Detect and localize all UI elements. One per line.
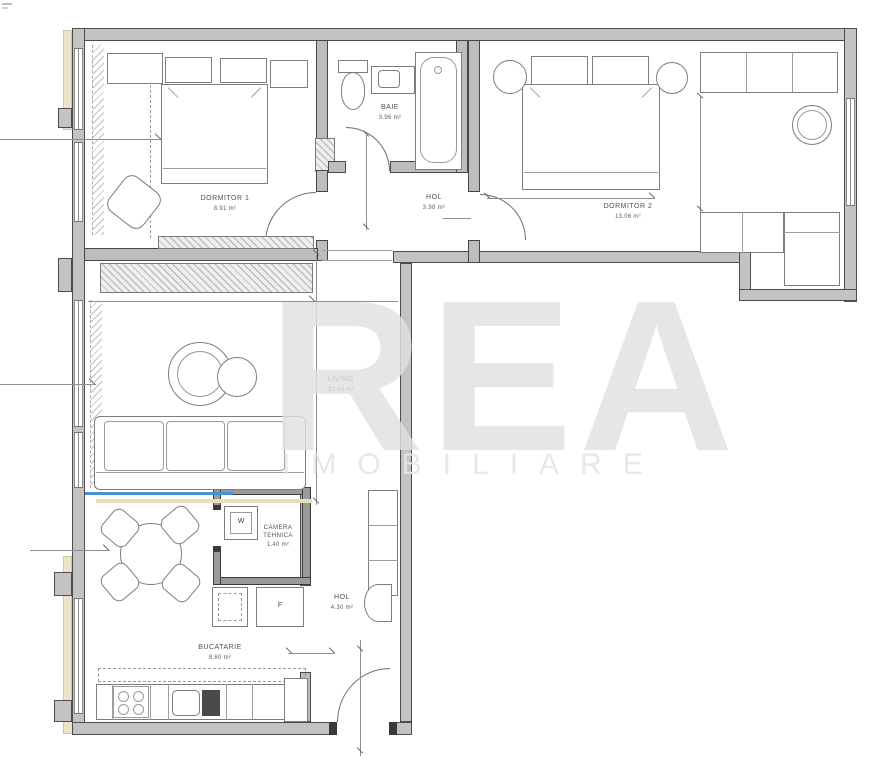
room-label-baie: BAIE 3.96 m² xyxy=(368,103,412,123)
room-name: DORMITOR 2 xyxy=(580,202,676,213)
dimension-line xyxy=(288,653,334,654)
stove-burner xyxy=(133,691,144,702)
room-label-hol2: HOL 4.30 m² xyxy=(320,593,364,613)
counter-divider xyxy=(150,684,151,720)
dimension-line xyxy=(700,97,701,212)
round-stool xyxy=(656,62,688,94)
sofa-seat xyxy=(104,421,164,471)
wardrobe-divider xyxy=(792,52,793,93)
corner-cabinet xyxy=(784,212,840,286)
room-area: 8.60 m² xyxy=(185,654,255,663)
wall-hall-bedroom2 xyxy=(468,40,480,192)
floor-plan: DORMITOR 1 8.91 m² BAIE 3.96 m² HOL 3.98… xyxy=(0,0,880,768)
room-area: 4.30 m² xyxy=(320,604,364,613)
window xyxy=(74,142,83,222)
room-label-camera-tehnica: CAMERA TEHNICA 1.40 m² xyxy=(255,524,301,549)
window xyxy=(74,598,83,714)
cabinet-divider xyxy=(784,232,840,233)
low-cabinet xyxy=(158,236,314,249)
dimension-line xyxy=(88,301,398,302)
bed-double xyxy=(522,84,660,190)
counter-divider xyxy=(168,684,169,720)
wall-wing-right xyxy=(400,263,412,722)
door-jamb xyxy=(329,722,337,735)
room-label-bucatarie: BUCATARIE 8.60 m² xyxy=(185,643,255,663)
floor-transition-line xyxy=(322,250,392,251)
room-name: DORMITOR 1 xyxy=(180,194,270,205)
wall-wing-bottom xyxy=(393,251,750,263)
round-stool xyxy=(493,60,527,94)
door-arc-entrance xyxy=(337,668,390,722)
dimension-line xyxy=(366,135,367,230)
window xyxy=(74,300,83,427)
sink-basin xyxy=(378,70,400,88)
console-半round-table xyxy=(364,584,392,622)
dimension-line xyxy=(487,198,655,199)
nightstand xyxy=(270,60,308,88)
facade-pier xyxy=(54,572,72,596)
wardrobe-divider xyxy=(746,52,747,93)
fridge-letter: F xyxy=(275,602,285,609)
toilet-bowl xyxy=(341,72,365,110)
room-area: 1.40 m² xyxy=(255,541,301,549)
watermark-subtitle-text: IMOBILIARE xyxy=(282,450,664,480)
corner-artifact xyxy=(2,3,12,5)
dimension-line xyxy=(360,640,361,756)
room-name: BUCATARIE xyxy=(185,643,255,654)
room-area: 31.60 m² xyxy=(310,386,372,395)
armchair xyxy=(103,171,165,233)
window xyxy=(74,432,83,488)
door-jamb xyxy=(213,546,221,551)
room-label-dormitor1: DORMITOR 1 8.91 m² xyxy=(180,194,270,214)
counter-divider xyxy=(252,684,253,720)
corner-artifact xyxy=(2,7,8,9)
wardrobe xyxy=(700,52,838,93)
nightstand xyxy=(165,57,212,83)
door-jamb xyxy=(213,505,221,510)
room-label-dormitor2: DORMITOR 2 13.06 m² xyxy=(580,202,676,222)
tv-cabinet xyxy=(100,263,313,293)
window xyxy=(846,98,855,206)
coffee-table-small xyxy=(217,357,257,397)
curtain-symbol xyxy=(92,45,104,235)
wall-bath-bottom xyxy=(328,161,346,173)
kitchen-sink xyxy=(172,690,200,716)
stove-burner xyxy=(118,704,129,715)
accent-blue-line xyxy=(85,492,233,495)
round-chair-inner xyxy=(797,110,827,140)
wall-bottom-right xyxy=(395,722,412,735)
counter-divider xyxy=(226,684,227,720)
room-name: CAMERA TEHNICA xyxy=(255,524,301,541)
wall-step-bottom xyxy=(739,289,857,301)
bed-blanket-line xyxy=(163,168,266,169)
room-area: 13.06 m² xyxy=(580,213,676,222)
sofa-seat xyxy=(166,421,225,471)
door-arc-bedroom2 xyxy=(480,194,526,240)
wall-bottom-left xyxy=(72,722,335,735)
wardrobe-divider xyxy=(368,525,398,526)
bed-double xyxy=(161,84,268,184)
floor-transition-line xyxy=(322,260,392,261)
sofa-seat xyxy=(227,421,285,471)
accent-tan-line xyxy=(96,499,312,503)
counter-return xyxy=(284,678,308,722)
room-name: BAIE xyxy=(368,103,412,114)
dimension-line xyxy=(0,139,162,140)
tall-unit-dashed xyxy=(218,593,242,621)
room-name: HOL xyxy=(412,193,456,204)
wall-technical-room xyxy=(213,577,311,585)
dimension-line xyxy=(30,550,110,551)
bathtub-drain xyxy=(434,66,442,74)
wardrobe-divider xyxy=(368,560,398,561)
facade-pier xyxy=(54,700,72,722)
stove-burner xyxy=(118,691,129,702)
wardrobe xyxy=(107,53,163,84)
room-area: 3.96 m² xyxy=(368,114,412,123)
sofa-back-line xyxy=(96,472,304,473)
room-name: LIVING xyxy=(310,375,372,386)
wall-bedroom1-hall xyxy=(316,170,328,192)
coffee-table-large-inner xyxy=(177,351,223,397)
room-area: 8.91 m² xyxy=(180,205,270,214)
washing-machine-letter: W xyxy=(236,518,246,525)
facade-pier xyxy=(58,258,72,292)
wall-bedroom1-living xyxy=(84,248,318,261)
door-jamb xyxy=(389,722,397,735)
wall-bedroom1-bath xyxy=(316,40,328,140)
nightstand xyxy=(220,58,267,83)
door-arc-bath xyxy=(346,127,390,171)
facade-pier xyxy=(58,108,72,128)
upper-cabinets-dashed xyxy=(98,668,306,682)
stove xyxy=(113,686,149,718)
sink-drainer xyxy=(202,690,220,716)
room-name: HOL xyxy=(320,593,364,604)
wall-hall-bedroom2 xyxy=(468,240,480,263)
cabinet-divider xyxy=(742,212,743,253)
dimension-line xyxy=(443,218,471,219)
stove-burner xyxy=(133,704,144,715)
dimension-line xyxy=(0,384,96,385)
hall-wardrobe xyxy=(368,490,398,596)
bed-blanket-line xyxy=(524,172,658,173)
window xyxy=(74,48,83,130)
room-label-living: LIVING 31.60 m² xyxy=(310,375,372,395)
room-label-hol1: HOL 3.98 m² xyxy=(412,193,456,213)
wall-technical-room xyxy=(213,551,221,585)
room-area: 3.98 m² xyxy=(412,204,456,213)
